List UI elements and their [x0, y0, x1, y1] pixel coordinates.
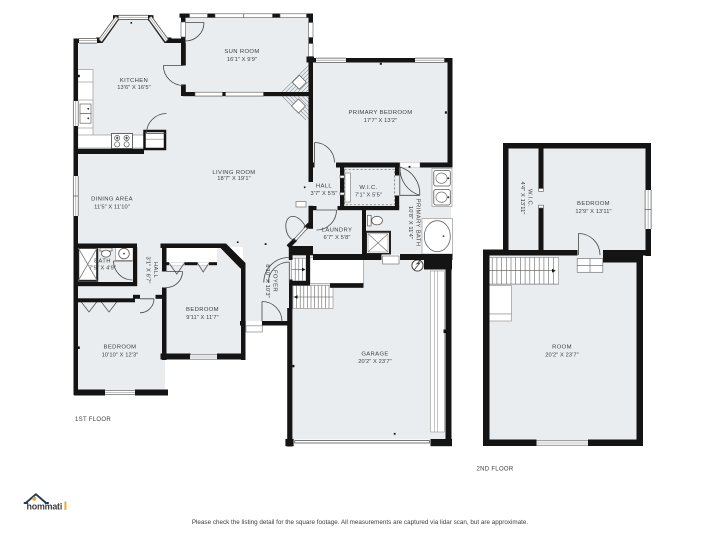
svg-text:W.I.C.: W.I.C. — [359, 185, 377, 191]
svg-text:16'1" X 9'9": 16'1" X 9'9" — [227, 57, 257, 63]
svg-text:BEDROOM: BEDROOM — [104, 345, 137, 351]
svg-text:GARAGE: GARAGE — [361, 352, 388, 358]
svg-text:20'2" X 23'7": 20'2" X 23'7" — [545, 353, 578, 359]
svg-text:W.I.C.: W.I.C. — [527, 189, 533, 207]
svg-text:LAUNDRY: LAUNDRY — [322, 228, 353, 234]
svg-text:KITCHEN: KITCHEN — [120, 78, 148, 84]
svg-text:6'7" X 5'8": 6'7" X 5'8" — [324, 235, 351, 241]
svg-text:3'7" X 5'5": 3'7" X 5'5" — [311, 191, 338, 197]
svg-text:10'8" X 11'4": 10'8" X 11'4" — [407, 206, 413, 239]
svg-text:PRIMARY BEDROOM: PRIMARY BEDROOM — [349, 110, 413, 116]
svg-text:20'2" X 23'7": 20'2" X 23'7" — [358, 359, 391, 365]
svg-text:1ST FLOOR: 1ST FLOOR — [75, 417, 111, 423]
svg-text:HALL: HALL — [316, 184, 333, 190]
svg-text:hommati: hommati — [27, 502, 63, 512]
svg-text:3'1" X 6'7": 3'1" X 6'7" — [145, 257, 151, 284]
svg-text:2ND FLOOR: 2ND FLOOR — [476, 467, 513, 473]
svg-text:4'4" X 13'11": 4'4" X 13'11" — [519, 181, 525, 214]
svg-text:12'9" X 13'11": 12'9" X 13'11" — [575, 209, 611, 215]
svg-text:BEDROOM: BEDROOM — [186, 307, 219, 313]
svg-text:7'1" X 5'5": 7'1" X 5'5" — [355, 193, 382, 199]
svg-text:11'5" X 11'10": 11'5" X 11'10" — [94, 205, 130, 211]
svg-text:SUN ROOM: SUN ROOM — [224, 49, 259, 55]
svg-text:13'6" X 16'5": 13'6" X 16'5" — [117, 85, 150, 91]
svg-text:HALL: HALL — [152, 262, 158, 279]
svg-text:9'11" X 11'7": 9'11" X 11'7" — [186, 315, 219, 321]
svg-text:7'5" X 4'9": 7'5" X 4'9" — [89, 265, 116, 271]
svg-text:Please check the listing detai: Please check the listing detail for the … — [192, 519, 529, 526]
svg-text:BEDROOM: BEDROOM — [577, 201, 610, 207]
svg-text:8'10" X 10'3": 8'10" X 10'3" — [264, 264, 270, 297]
svg-text:DINING AREA: DINING AREA — [91, 197, 133, 203]
svg-text:17'7" X 13'2": 17'7" X 13'2" — [364, 118, 397, 124]
svg-text:BATH: BATH — [94, 259, 111, 265]
svg-text:18'7" X 19'1": 18'7" X 19'1" — [217, 176, 250, 182]
svg-text:ROOM: ROOM — [552, 345, 572, 351]
svg-text:PRIMARY BATH: PRIMARY BATH — [415, 199, 421, 247]
svg-text:10'10" X 12'3": 10'10" X 12'3" — [102, 353, 139, 359]
svg-text:FOYER: FOYER — [272, 270, 278, 292]
